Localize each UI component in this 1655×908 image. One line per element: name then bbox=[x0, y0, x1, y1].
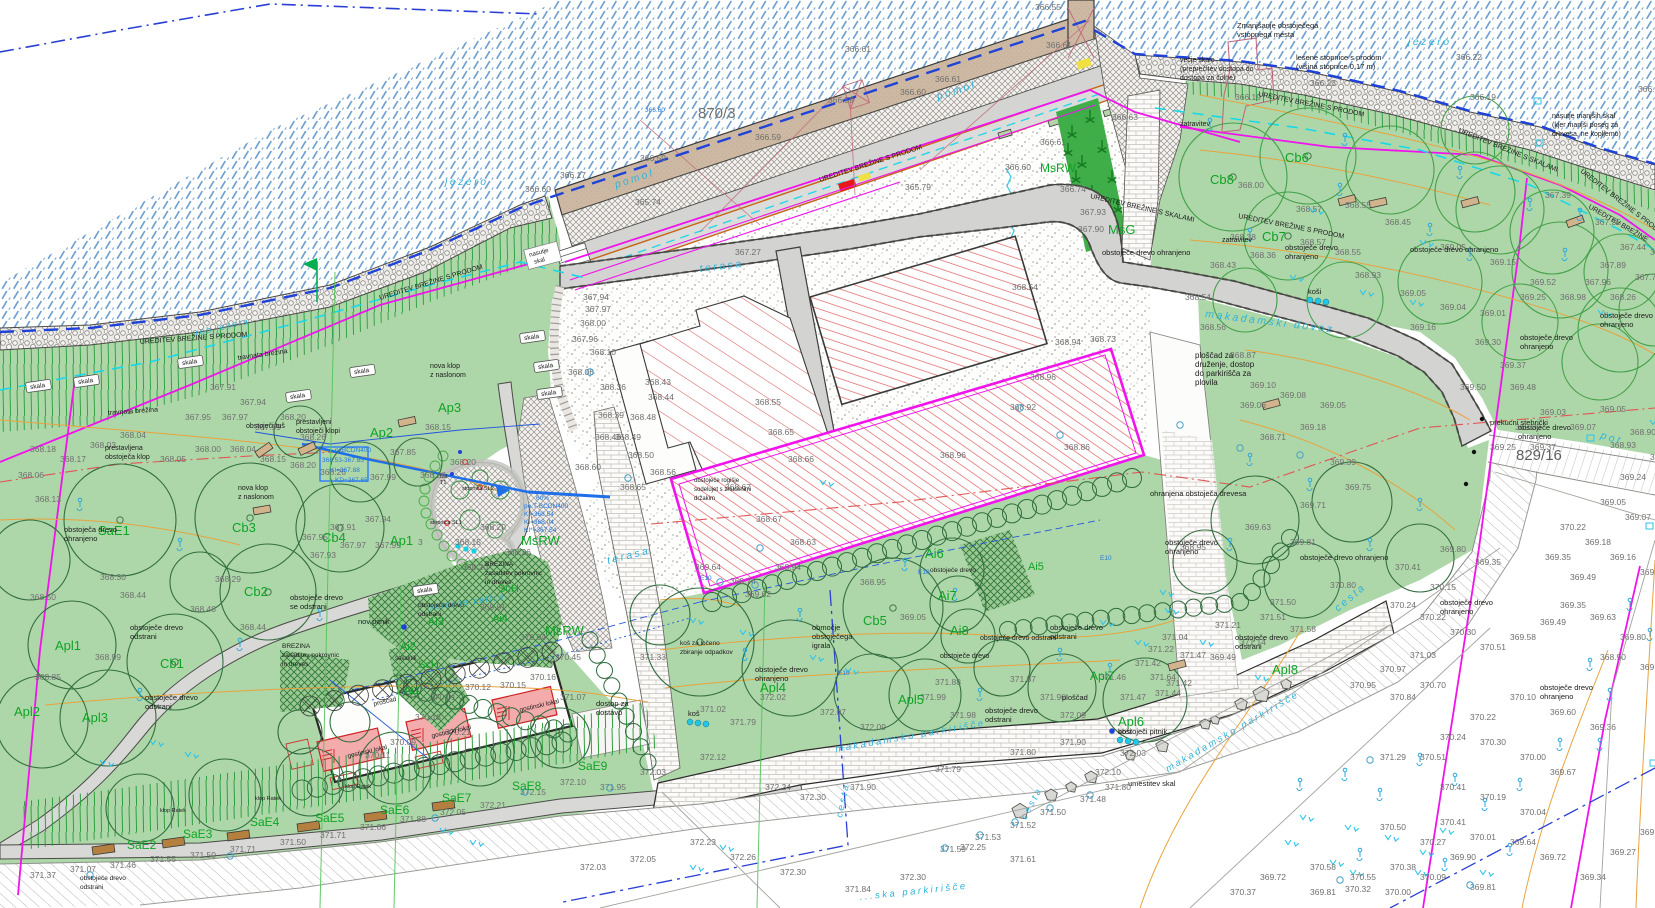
svg-text:370.30: 370.30 bbox=[1450, 627, 1476, 637]
svg-text:369.58: 369.58 bbox=[1510, 632, 1536, 642]
svg-text:369.05: 369.05 bbox=[1600, 497, 1626, 507]
svg-text:368.95: 368.95 bbox=[860, 577, 886, 587]
svg-text:368.26: 368.26 bbox=[505, 547, 531, 557]
svg-text:obstoječa klop: obstoječa klop bbox=[105, 454, 150, 461]
svg-text:369.75: 369.75 bbox=[1345, 482, 1371, 492]
svg-text:370.12: 370.12 bbox=[465, 682, 491, 692]
svg-text:366.74: 366.74 bbox=[1060, 184, 1086, 194]
svg-text:371.50: 371.50 bbox=[190, 850, 216, 860]
svg-text:368.46: 368.46 bbox=[595, 432, 621, 442]
svg-text:368.56: 368.56 bbox=[1200, 322, 1226, 332]
svg-text:368.36: 368.36 bbox=[1250, 250, 1276, 260]
svg-text:umestitev skal: umestitev skal bbox=[1128, 779, 1176, 788]
svg-text:367.90: 367.90 bbox=[1078, 224, 1104, 234]
svg-text:366.59: 366.59 bbox=[640, 153, 666, 163]
svg-text:367.93: 367.93 bbox=[1080, 207, 1106, 217]
svg-text:369.80: 369.80 bbox=[1440, 544, 1466, 554]
svg-text:371.58: 371.58 bbox=[1290, 624, 1316, 634]
svg-text:Cb3: Cb3 bbox=[232, 520, 256, 535]
svg-text:lesene stopnice s prodom: lesene stopnice s prodom bbox=[1296, 53, 1381, 62]
svg-text:in dreves: in dreves bbox=[282, 661, 309, 668]
svg-text:368.73: 368.73 bbox=[1090, 334, 1116, 344]
svg-text:369.37: 369.37 bbox=[1500, 360, 1526, 370]
svg-text:366.17: 366.17 bbox=[560, 170, 586, 180]
svg-text:369.08: 369.08 bbox=[1280, 390, 1306, 400]
svg-text:ohranjeno: ohranjeno bbox=[755, 674, 788, 683]
svg-text:368.05: 368.05 bbox=[160, 454, 186, 464]
svg-text:366.61: 366.61 bbox=[1046, 40, 1072, 50]
svg-text:nov pitnik: nov pitnik bbox=[358, 617, 390, 626]
svg-text:Apl6: Apl6 bbox=[1118, 714, 1144, 729]
svg-text:370.41: 370.41 bbox=[1395, 562, 1421, 572]
svg-text:369.35: 369.35 bbox=[1545, 552, 1571, 562]
svg-text:368.55: 368.55 bbox=[1345, 200, 1371, 210]
svg-text:368.54: 368.54 bbox=[1012, 282, 1038, 292]
svg-text:371.71: 371.71 bbox=[230, 844, 256, 854]
svg-text:368.56: 368.56 bbox=[650, 467, 676, 477]
svg-text:ohranjeno: ohranjeno bbox=[1285, 252, 1318, 261]
svg-text:366.23: 366.23 bbox=[1310, 78, 1336, 88]
svg-text:369.35: 369.35 bbox=[1475, 557, 1501, 567]
svg-text:T1: T1 bbox=[440, 480, 446, 486]
svg-text:366.59: 366.59 bbox=[755, 132, 781, 142]
svg-text:nova klop: nova klop bbox=[238, 485, 268, 492]
svg-text:366.61: 366.61 bbox=[1040, 137, 1066, 147]
svg-text:klop Ratek: klop Ratek bbox=[345, 784, 371, 790]
svg-text:369.90: 369.90 bbox=[1450, 852, 1476, 862]
svg-text:zasaditev pokrovnic: zasaditev pokrovnic bbox=[485, 570, 543, 577]
svg-text:368.39: 368.39 bbox=[598, 410, 624, 420]
svg-text:371.51: 371.51 bbox=[1260, 612, 1286, 622]
svg-text:Ap3: Ap3 bbox=[438, 400, 461, 415]
svg-text:370.24: 370.24 bbox=[1390, 600, 1416, 610]
svg-text:368.00: 368.00 bbox=[195, 444, 221, 454]
svg-text:Cb5: Cb5 bbox=[863, 613, 887, 628]
svg-text:368.00: 368.00 bbox=[580, 318, 606, 328]
svg-text:371.44: 371.44 bbox=[1155, 688, 1181, 698]
svg-text:E10: E10 bbox=[918, 569, 930, 576]
svg-text:(preprečitev dostopa do: (preprečitev dostopa do bbox=[1180, 66, 1254, 73]
svg-text:klop Ratek: klop Ratek bbox=[255, 796, 281, 802]
svg-text:371.42: 371.42 bbox=[1166, 678, 1192, 688]
svg-text:obstoječe drevo ohranjeno: obstoječe drevo ohranjeno bbox=[1300, 553, 1388, 562]
svg-text:368.00: 368.00 bbox=[1238, 180, 1264, 190]
svg-text:SaE7: SaE7 bbox=[442, 791, 472, 805]
svg-text:369.01: 369.01 bbox=[1480, 308, 1506, 318]
svg-text:369.63: 369.63 bbox=[1245, 522, 1271, 532]
svg-text:SaE2: SaE2 bbox=[127, 838, 157, 852]
svg-text:obstoječe drevo: obstoječe drevo bbox=[130, 623, 183, 632]
svg-text:371.61: 371.61 bbox=[1010, 854, 1036, 864]
svg-text:Ai6: Ai6 bbox=[925, 546, 944, 561]
svg-text:obstoječe drevo: obstoječe drevo bbox=[290, 593, 343, 602]
svg-text:Cb4: Cb4 bbox=[322, 530, 346, 545]
svg-text:odstrani: odstrani bbox=[1235, 642, 1262, 651]
svg-text:jezero: jezero bbox=[443, 176, 489, 188]
svg-text:obstoječe drevo: obstoječe drevo bbox=[1285, 243, 1338, 252]
svg-text:sodelujet s znucenimi: sodelujet s znucenimi bbox=[694, 487, 751, 493]
svg-text:Apl2: Apl2 bbox=[14, 704, 40, 719]
svg-text:369.16: 369.16 bbox=[1410, 322, 1436, 332]
svg-text:SaE8: SaE8 bbox=[512, 779, 542, 793]
svg-text:in dreves: in dreves bbox=[485, 579, 512, 586]
svg-text:368.26: 368.26 bbox=[1610, 292, 1636, 302]
svg-text:Cb1: Cb1 bbox=[160, 656, 184, 671]
svg-text:369.16: 369.16 bbox=[1610, 552, 1636, 562]
svg-text:370.32: 370.32 bbox=[1345, 884, 1371, 894]
svg-text:Ai2: Ai2 bbox=[400, 641, 416, 653]
svg-text:372.07: 372.07 bbox=[820, 707, 846, 717]
svg-text:367.94: 367.94 bbox=[583, 292, 609, 302]
svg-text:372.10: 372.10 bbox=[1095, 767, 1121, 777]
svg-text:dostopa za čolne): dostopa za čolne) bbox=[1180, 75, 1235, 82]
svg-text:372.21: 372.21 bbox=[480, 800, 506, 810]
svg-text:ploščad za: ploščad za bbox=[1195, 351, 1234, 360]
svg-text:370.51: 370.51 bbox=[1480, 642, 1506, 652]
svg-text:370.01: 370.01 bbox=[430, 692, 456, 702]
svg-text:368.04: 368.04 bbox=[230, 444, 256, 454]
svg-text:365.79: 365.79 bbox=[905, 182, 931, 192]
svg-text:369.10: 369.10 bbox=[1250, 380, 1276, 390]
svg-text:368.15: 368.15 bbox=[260, 454, 286, 464]
svg-text:ohranjena obstoječa drevesa: ohranjena obstoječa drevesa bbox=[1150, 489, 1247, 498]
svg-text:368.55: 368.55 bbox=[755, 397, 781, 407]
svg-text:ohranjeno: ohranjeno bbox=[1600, 320, 1633, 329]
svg-text:368.20: 368.20 bbox=[480, 522, 506, 532]
svg-text:370.04: 370.04 bbox=[520, 632, 546, 642]
svg-text:zatravitev: zatravitev bbox=[1180, 121, 1210, 128]
svg-text:371.88: 371.88 bbox=[935, 677, 961, 687]
svg-text:odstrani: odstrani bbox=[145, 702, 172, 711]
svg-text:368.10: 368.10 bbox=[590, 347, 616, 357]
svg-text:369.60: 369.60 bbox=[1550, 707, 1576, 717]
svg-text:370.55: 370.55 bbox=[1350, 872, 1376, 882]
svg-text:koš: koš bbox=[688, 709, 700, 718]
svg-text:368.36: 368.36 bbox=[600, 382, 626, 392]
svg-text:obstoječe rogišje: obstoječe rogišje bbox=[694, 478, 740, 484]
svg-text:368.96: 368.96 bbox=[1030, 372, 1056, 382]
svg-text:obstoječe drevo: obstoječe drevo bbox=[985, 706, 1038, 715]
svg-text:365.74: 365.74 bbox=[635, 197, 661, 207]
svg-text:366.22: 366.22 bbox=[1456, 52, 1482, 62]
svg-text:obstoječe drevo ohranjeno: obstoječe drevo ohranjeno bbox=[1102, 248, 1190, 257]
svg-text:prestavljena: prestavljena bbox=[105, 445, 143, 452]
svg-text:nova klop: nova klop bbox=[430, 363, 460, 370]
svg-text:368.87: 368.87 bbox=[1230, 350, 1256, 360]
svg-text:368.60: 368.60 bbox=[575, 462, 601, 472]
svg-text:369.80: 369.80 bbox=[1620, 632, 1646, 642]
svg-text:370.15: 370.15 bbox=[500, 680, 526, 690]
svg-text:obstoječe drevo: obstoječe drevo bbox=[1050, 623, 1103, 632]
svg-text:370.10: 370.10 bbox=[1510, 692, 1536, 702]
svg-text:371.02: 371.02 bbox=[700, 704, 726, 714]
svg-text:Cb6: Cb6 bbox=[1285, 150, 1309, 165]
svg-text:371.46: 371.46 bbox=[110, 860, 136, 870]
svg-text:371.22: 371.22 bbox=[1148, 644, 1174, 654]
svg-text:371.04: 371.04 bbox=[1162, 632, 1188, 642]
svg-text:370.01: 370.01 bbox=[1470, 832, 1496, 842]
svg-text:zbiranje odpadkov: zbiranje odpadkov bbox=[680, 649, 734, 656]
svg-text:z naslonom: z naslonom bbox=[238, 494, 274, 501]
svg-text:območje: območje bbox=[812, 623, 840, 632]
svg-text:370.09: 370.09 bbox=[390, 737, 416, 747]
svg-text:do parkirišča za: do parkirišča za bbox=[1195, 369, 1252, 378]
svg-text:368.43: 368.43 bbox=[645, 377, 671, 387]
svg-text:366.60: 366.60 bbox=[900, 87, 926, 97]
svg-text:369.35: 369.35 bbox=[1640, 827, 1655, 837]
svg-text:370.30: 370.30 bbox=[1480, 737, 1506, 747]
svg-text:367.89: 367.89 bbox=[1600, 260, 1626, 270]
svg-text:obstoječega: obstoječega bbox=[812, 632, 853, 641]
svg-text:369.67: 369.67 bbox=[1550, 767, 1576, 777]
svg-text:368.15: 368.15 bbox=[425, 422, 451, 432]
svg-text:držakim: držakim bbox=[694, 496, 715, 502]
svg-text:368.18: 368.18 bbox=[30, 444, 56, 454]
svg-text:372.30: 372.30 bbox=[800, 792, 826, 802]
svg-text:367.97: 367.97 bbox=[222, 412, 248, 422]
svg-text:370.95: 370.95 bbox=[1350, 680, 1376, 690]
svg-text:obstoječe drevo odstrani: obstoječe drevo odstrani bbox=[980, 635, 1057, 642]
svg-text:367.79: 367.79 bbox=[1635, 272, 1655, 282]
svg-text:(kjer manjši poseg za: (kjer manjši poseg za bbox=[1552, 122, 1618, 129]
svg-text:odstrani: odstrani bbox=[418, 611, 441, 618]
svg-text:Zmanjšanje obstoječega: Zmanjšanje obstoječega bbox=[1237, 21, 1319, 30]
svg-text:368.13: 368.13 bbox=[35, 494, 61, 504]
svg-text:367.85: 367.85 bbox=[390, 447, 416, 457]
svg-text:MsG: MsG bbox=[1108, 222, 1135, 237]
svg-text:372.05: 372.05 bbox=[440, 807, 466, 817]
svg-text:E10: E10 bbox=[1100, 555, 1112, 562]
svg-text:370.09: 370.09 bbox=[1420, 872, 1446, 882]
svg-text:369.49: 369.49 bbox=[1540, 617, 1566, 627]
svg-text:368.44: 368.44 bbox=[648, 392, 674, 402]
svg-text:371.87: 371.87 bbox=[1010, 674, 1036, 684]
svg-text:3: 3 bbox=[418, 537, 423, 547]
svg-text:368.26: 368.26 bbox=[420, 470, 446, 480]
svg-text:369.07: 369.07 bbox=[1625, 512, 1651, 522]
svg-text:prestavljeni: prestavljeni bbox=[296, 419, 332, 426]
svg-text:Cb7: Cb7 bbox=[1262, 229, 1286, 244]
svg-text:Apl1: Apl1 bbox=[55, 638, 81, 653]
svg-text:367.94: 367.94 bbox=[240, 397, 266, 407]
svg-text:829/16: 829/16 bbox=[1516, 447, 1562, 464]
svg-text:obstoječe drevo: obstoječe drevo bbox=[145, 693, 198, 702]
svg-text:SaE5: SaE5 bbox=[315, 811, 345, 825]
svg-text:368.06: 368.06 bbox=[18, 470, 44, 480]
svg-text:369.15: 369.15 bbox=[1490, 257, 1516, 267]
svg-text:372.09: 372.09 bbox=[1060, 710, 1086, 720]
svg-text:370.58: 370.58 bbox=[1310, 862, 1336, 872]
svg-text:371.80: 371.80 bbox=[1010, 747, 1036, 757]
svg-text:370.41: 370.41 bbox=[1440, 817, 1466, 827]
svg-text:369.48: 369.48 bbox=[1510, 382, 1536, 392]
svg-text:368.66: 368.66 bbox=[788, 454, 814, 464]
svg-text:372.03: 372.03 bbox=[1120, 748, 1146, 758]
svg-text:370.00: 370.00 bbox=[1385, 887, 1411, 897]
svg-text:371.03: 371.03 bbox=[1410, 650, 1436, 660]
svg-text:370.51: 370.51 bbox=[1420, 752, 1446, 762]
svg-text:Apl3: Apl3 bbox=[82, 710, 108, 725]
svg-text:Ai1: Ai1 bbox=[404, 685, 420, 697]
svg-text:367.91: 367.91 bbox=[210, 382, 236, 392]
svg-text:ScH: ScH bbox=[418, 659, 439, 671]
svg-text:Apl7: Apl7 bbox=[1090, 669, 1114, 683]
svg-text:369.05: 369.05 bbox=[1400, 288, 1426, 298]
svg-text:369.64: 369.64 bbox=[695, 562, 721, 572]
svg-text:Cb2: Cb2 bbox=[244, 584, 268, 599]
svg-text:370.97: 370.97 bbox=[1380, 664, 1406, 674]
svg-text:368.44: 368.44 bbox=[120, 590, 146, 600]
svg-text:369.05: 369.05 bbox=[900, 612, 926, 622]
svg-text:Cb8: Cb8 bbox=[1210, 172, 1234, 187]
svg-text:368.99: 368.99 bbox=[1650, 452, 1655, 462]
svg-text:368.48: 368.48 bbox=[190, 604, 216, 614]
svg-text:368.94: 368.94 bbox=[775, 562, 801, 572]
svg-text:369.18: 369.18 bbox=[1585, 537, 1611, 547]
svg-text:zatravitev: zatravitev bbox=[1222, 237, 1252, 244]
svg-text:372.10: 372.10 bbox=[560, 777, 586, 787]
svg-text:dostavo: dostavo bbox=[596, 708, 622, 717]
svg-text:367.97: 367.97 bbox=[585, 304, 611, 314]
svg-text:370.16: 370.16 bbox=[530, 672, 556, 682]
svg-text:371.42: 371.42 bbox=[1135, 658, 1161, 668]
svg-text:369.18: 369.18 bbox=[1300, 422, 1326, 432]
svg-text:367.96: 367.96 bbox=[572, 334, 598, 344]
svg-text:369.16: 369.16 bbox=[1640, 662, 1655, 672]
svg-text:369.36: 369.36 bbox=[1590, 722, 1616, 732]
svg-text:ohranjeno: ohranjeno bbox=[64, 534, 97, 543]
svg-text:stopnica SL2: stopnica SL2 bbox=[462, 486, 494, 492]
svg-text:KI=367.88: KI=367.88 bbox=[330, 467, 360, 474]
svg-text:obstoječe drevo: obstoječe drevo bbox=[1540, 683, 1593, 692]
svg-text:pxBCDN400: pxBCDN400 bbox=[335, 447, 372, 454]
svg-text:obstoječa drevo: obstoječa drevo bbox=[64, 525, 117, 534]
svg-text:368.57: 368.57 bbox=[1296, 204, 1322, 214]
svg-text:368.63: 368.63 bbox=[790, 537, 816, 547]
svg-text:Apl5: Apl5 bbox=[898, 692, 924, 707]
svg-text:369.04: 369.04 bbox=[1440, 302, 1466, 312]
svg-text:367.39: 367.39 bbox=[1545, 190, 1571, 200]
svg-text:369.39: 369.39 bbox=[1330, 457, 1356, 467]
svg-text:366.60: 366.60 bbox=[645, 107, 665, 114]
svg-text:dostop za: dostop za bbox=[596, 699, 629, 708]
svg-text:369.27: 369.27 bbox=[1610, 847, 1636, 857]
svg-text:MsRW: MsRW bbox=[545, 623, 584, 638]
svg-text:E10: E10 bbox=[838, 670, 850, 677]
svg-text:KD=367.65: KD=367.65 bbox=[335, 477, 368, 484]
svg-text:870/3: 870/3 bbox=[698, 105, 736, 122]
svg-text:371.37: 371.37 bbox=[30, 870, 56, 880]
svg-text:367.27: 367.27 bbox=[735, 247, 761, 257]
svg-text:369.35: 369.35 bbox=[1640, 567, 1655, 577]
svg-text:371.21: 371.21 bbox=[1215, 620, 1241, 630]
svg-text:369.81: 369.81 bbox=[1470, 882, 1496, 892]
svg-text:371.50: 371.50 bbox=[1270, 597, 1296, 607]
svg-text:Ap1: Ap1 bbox=[390, 533, 413, 548]
svg-text:371.79: 371.79 bbox=[935, 764, 961, 774]
svg-text:369.05: 369.05 bbox=[1320, 400, 1346, 410]
svg-text:370.00: 370.00 bbox=[1520, 752, 1546, 762]
svg-text:366.22: 366.22 bbox=[1638, 84, 1655, 94]
svg-text:368.65: 368.65 bbox=[620, 482, 646, 492]
svg-text:plovila: plovila bbox=[1195, 378, 1218, 387]
svg-text:366.60: 366.60 bbox=[525, 184, 551, 194]
svg-text:nasutje manjših skal: nasutje manjših skal bbox=[1552, 113, 1615, 120]
svg-text:370.24: 370.24 bbox=[1440, 732, 1466, 742]
svg-text:sekalnik: sekalnik bbox=[395, 656, 418, 662]
svg-text:369.72: 369.72 bbox=[1540, 852, 1566, 862]
svg-text:372.24: 372.24 bbox=[765, 782, 791, 792]
svg-text:369.06: 369.06 bbox=[1240, 400, 1266, 410]
svg-text:371.90: 371.90 bbox=[850, 782, 876, 792]
svg-text:Ai5: Ai5 bbox=[1028, 561, 1044, 573]
svg-text:368.90: 368.90 bbox=[1630, 427, 1655, 437]
svg-text:370.04: 370.04 bbox=[1520, 807, 1546, 817]
svg-text:372.09: 372.09 bbox=[860, 722, 886, 732]
svg-text:368.20: 368.20 bbox=[450, 457, 476, 467]
svg-text:371.50: 371.50 bbox=[280, 837, 306, 847]
svg-text:371.55: 371.55 bbox=[150, 854, 176, 864]
svg-text:koši: koši bbox=[1308, 287, 1322, 296]
svg-text:zasaditev pokrovnic: zasaditev pokrovnic bbox=[282, 652, 340, 659]
svg-text:Ai8: Ai8 bbox=[950, 623, 969, 638]
svg-text:371.53: 371.53 bbox=[975, 832, 1001, 842]
svg-text:SaE9: SaE9 bbox=[578, 759, 608, 773]
svg-text:369.35: 369.35 bbox=[1560, 600, 1586, 610]
svg-text:Ai4: Ai4 bbox=[492, 613, 508, 625]
svg-text:BREZINA: BREZINA bbox=[485, 561, 514, 568]
svg-text:372.30: 372.30 bbox=[780, 867, 806, 877]
svg-text:370.38: 370.38 bbox=[1390, 862, 1416, 872]
svg-text:367.93: 367.93 bbox=[310, 550, 336, 560]
svg-text:SaE6: SaE6 bbox=[380, 803, 410, 817]
svg-text:ohranjeno: ohranjeno bbox=[1540, 692, 1573, 701]
svg-text:368.43: 368.43 bbox=[1210, 260, 1236, 270]
svg-text:371.79: 371.79 bbox=[730, 717, 756, 727]
svg-text:371.47: 371.47 bbox=[1180, 650, 1206, 660]
svg-text:369.25: 369.25 bbox=[1520, 292, 1546, 302]
svg-text:372.03: 372.03 bbox=[580, 862, 606, 872]
svg-text:366.59: 366.59 bbox=[828, 95, 854, 105]
svg-text:368.65: 368.65 bbox=[768, 427, 794, 437]
svg-text:367.44: 367.44 bbox=[1620, 242, 1646, 252]
svg-text:366.61: 366.61 bbox=[845, 44, 871, 54]
svg-text:ohranjeno: ohranjeno bbox=[1165, 547, 1198, 556]
svg-text:obstoječe drevo: obstoječe drevo bbox=[1165, 538, 1218, 547]
svg-text:368.93: 368.93 bbox=[1355, 270, 1381, 280]
svg-text:368.50: 368.50 bbox=[628, 450, 654, 460]
svg-text:jezero: jezero bbox=[1406, 36, 1452, 48]
svg-text:MsRW: MsRW bbox=[1040, 161, 1076, 175]
svg-text:obstoječe drevo: obstoječe drevo bbox=[1518, 423, 1571, 432]
svg-text:369.72: 369.72 bbox=[1260, 872, 1286, 882]
svg-text:369.30: 369.30 bbox=[1475, 337, 1501, 347]
svg-text:369.03: 369.03 bbox=[1540, 407, 1566, 417]
svg-text:368.50: 368.50 bbox=[30, 592, 56, 602]
svg-text:drevesa, ne kopljemo): drevesa, ne kopljemo) bbox=[1552, 131, 1621, 138]
svg-text:Ai7: Ai7 bbox=[938, 588, 957, 603]
svg-text:366.19: 366.19 bbox=[1470, 92, 1496, 102]
svg-text:372.30: 372.30 bbox=[900, 872, 926, 882]
svg-text:KI=368.54: KI=368.54 bbox=[524, 511, 554, 518]
svg-text:370.19: 370.19 bbox=[1480, 792, 1506, 802]
svg-text:370.41: 370.41 bbox=[1440, 782, 1466, 792]
svg-text:370.50: 370.50 bbox=[1380, 822, 1406, 832]
svg-text:igrala: igrala bbox=[812, 641, 831, 650]
svg-text:E10: E10 bbox=[700, 575, 712, 582]
svg-text:368.55: 368.55 bbox=[1335, 247, 1361, 257]
svg-text:SaE3: SaE3 bbox=[183, 827, 213, 841]
